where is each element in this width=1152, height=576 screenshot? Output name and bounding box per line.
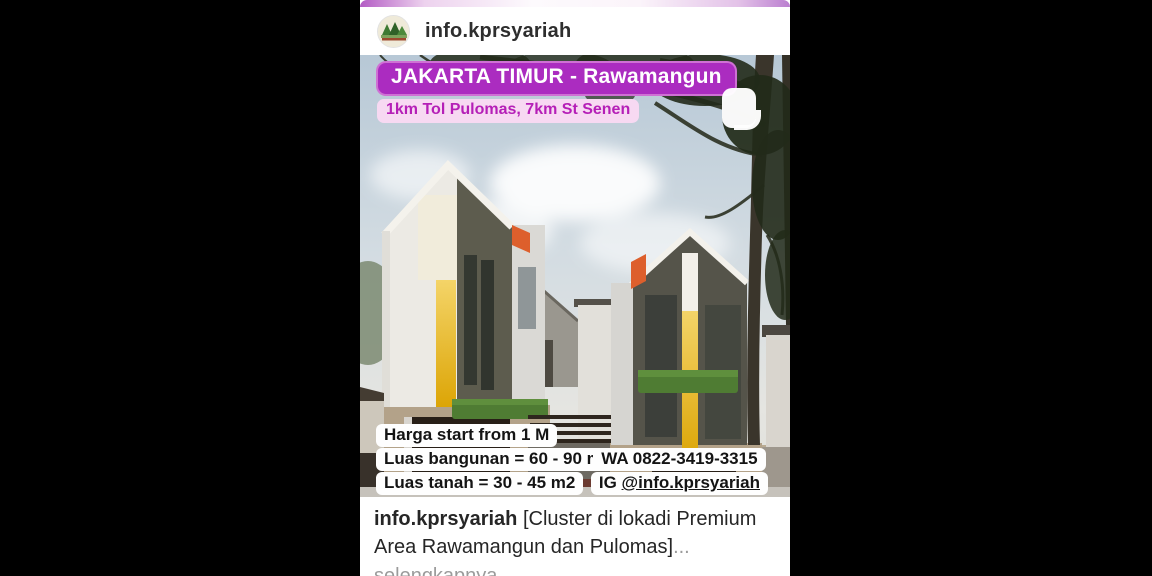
contact-instagram: IG @info.kprsyariah (591, 472, 768, 495)
caption-username[interactable]: info.kprsyariah (374, 508, 517, 530)
price-line: Harga start from 1 M (376, 424, 557, 447)
letterbox-right (790, 0, 1152, 576)
caption: info.kprsyariah [Cluster di lokadi Premi… (360, 497, 790, 576)
top-gradient-edge (360, 0, 790, 7)
ig-prefix: IG (599, 473, 622, 492)
location-badge: JAKARTA TIMUR - Rawamangun (376, 61, 737, 96)
post-image[interactable]: JAKARTA TIMUR - Rawamangun 1km Tol Pulom… (360, 55, 790, 497)
screen: info.kprsyariah (0, 0, 1152, 576)
post-card: info.kprsyariah (360, 0, 790, 576)
price-line: Luas tanah = 30 - 45 m2 (376, 472, 583, 495)
price-line: Luas bangunan = 60 - 90 m2 (376, 448, 619, 471)
ig-handle-link: @info.kprsyariah (622, 473, 760, 492)
post-header: info.kprsyariah (360, 7, 790, 55)
caption-ellipsis: ... (673, 536, 690, 558)
distance-badge: 1km Tol Pulomas, 7km St Senen (377, 99, 639, 123)
letterbox-left (0, 0, 360, 576)
contact-whatsapp: WA 0822-3419-3315 (593, 448, 765, 471)
contact-info-group: WA 0822-3419-3315 IG @info.kprsyariah (591, 448, 768, 495)
profile-avatar[interactable] (377, 15, 410, 48)
header-username[interactable]: info.kprsyariah (425, 20, 571, 43)
price-info-group: Harga start from 1 M Luas bangunan = 60 … (376, 424, 619, 495)
avatar-trees-logo-icon (378, 16, 409, 47)
see-more-link[interactable]: selengkapnya (374, 562, 776, 576)
